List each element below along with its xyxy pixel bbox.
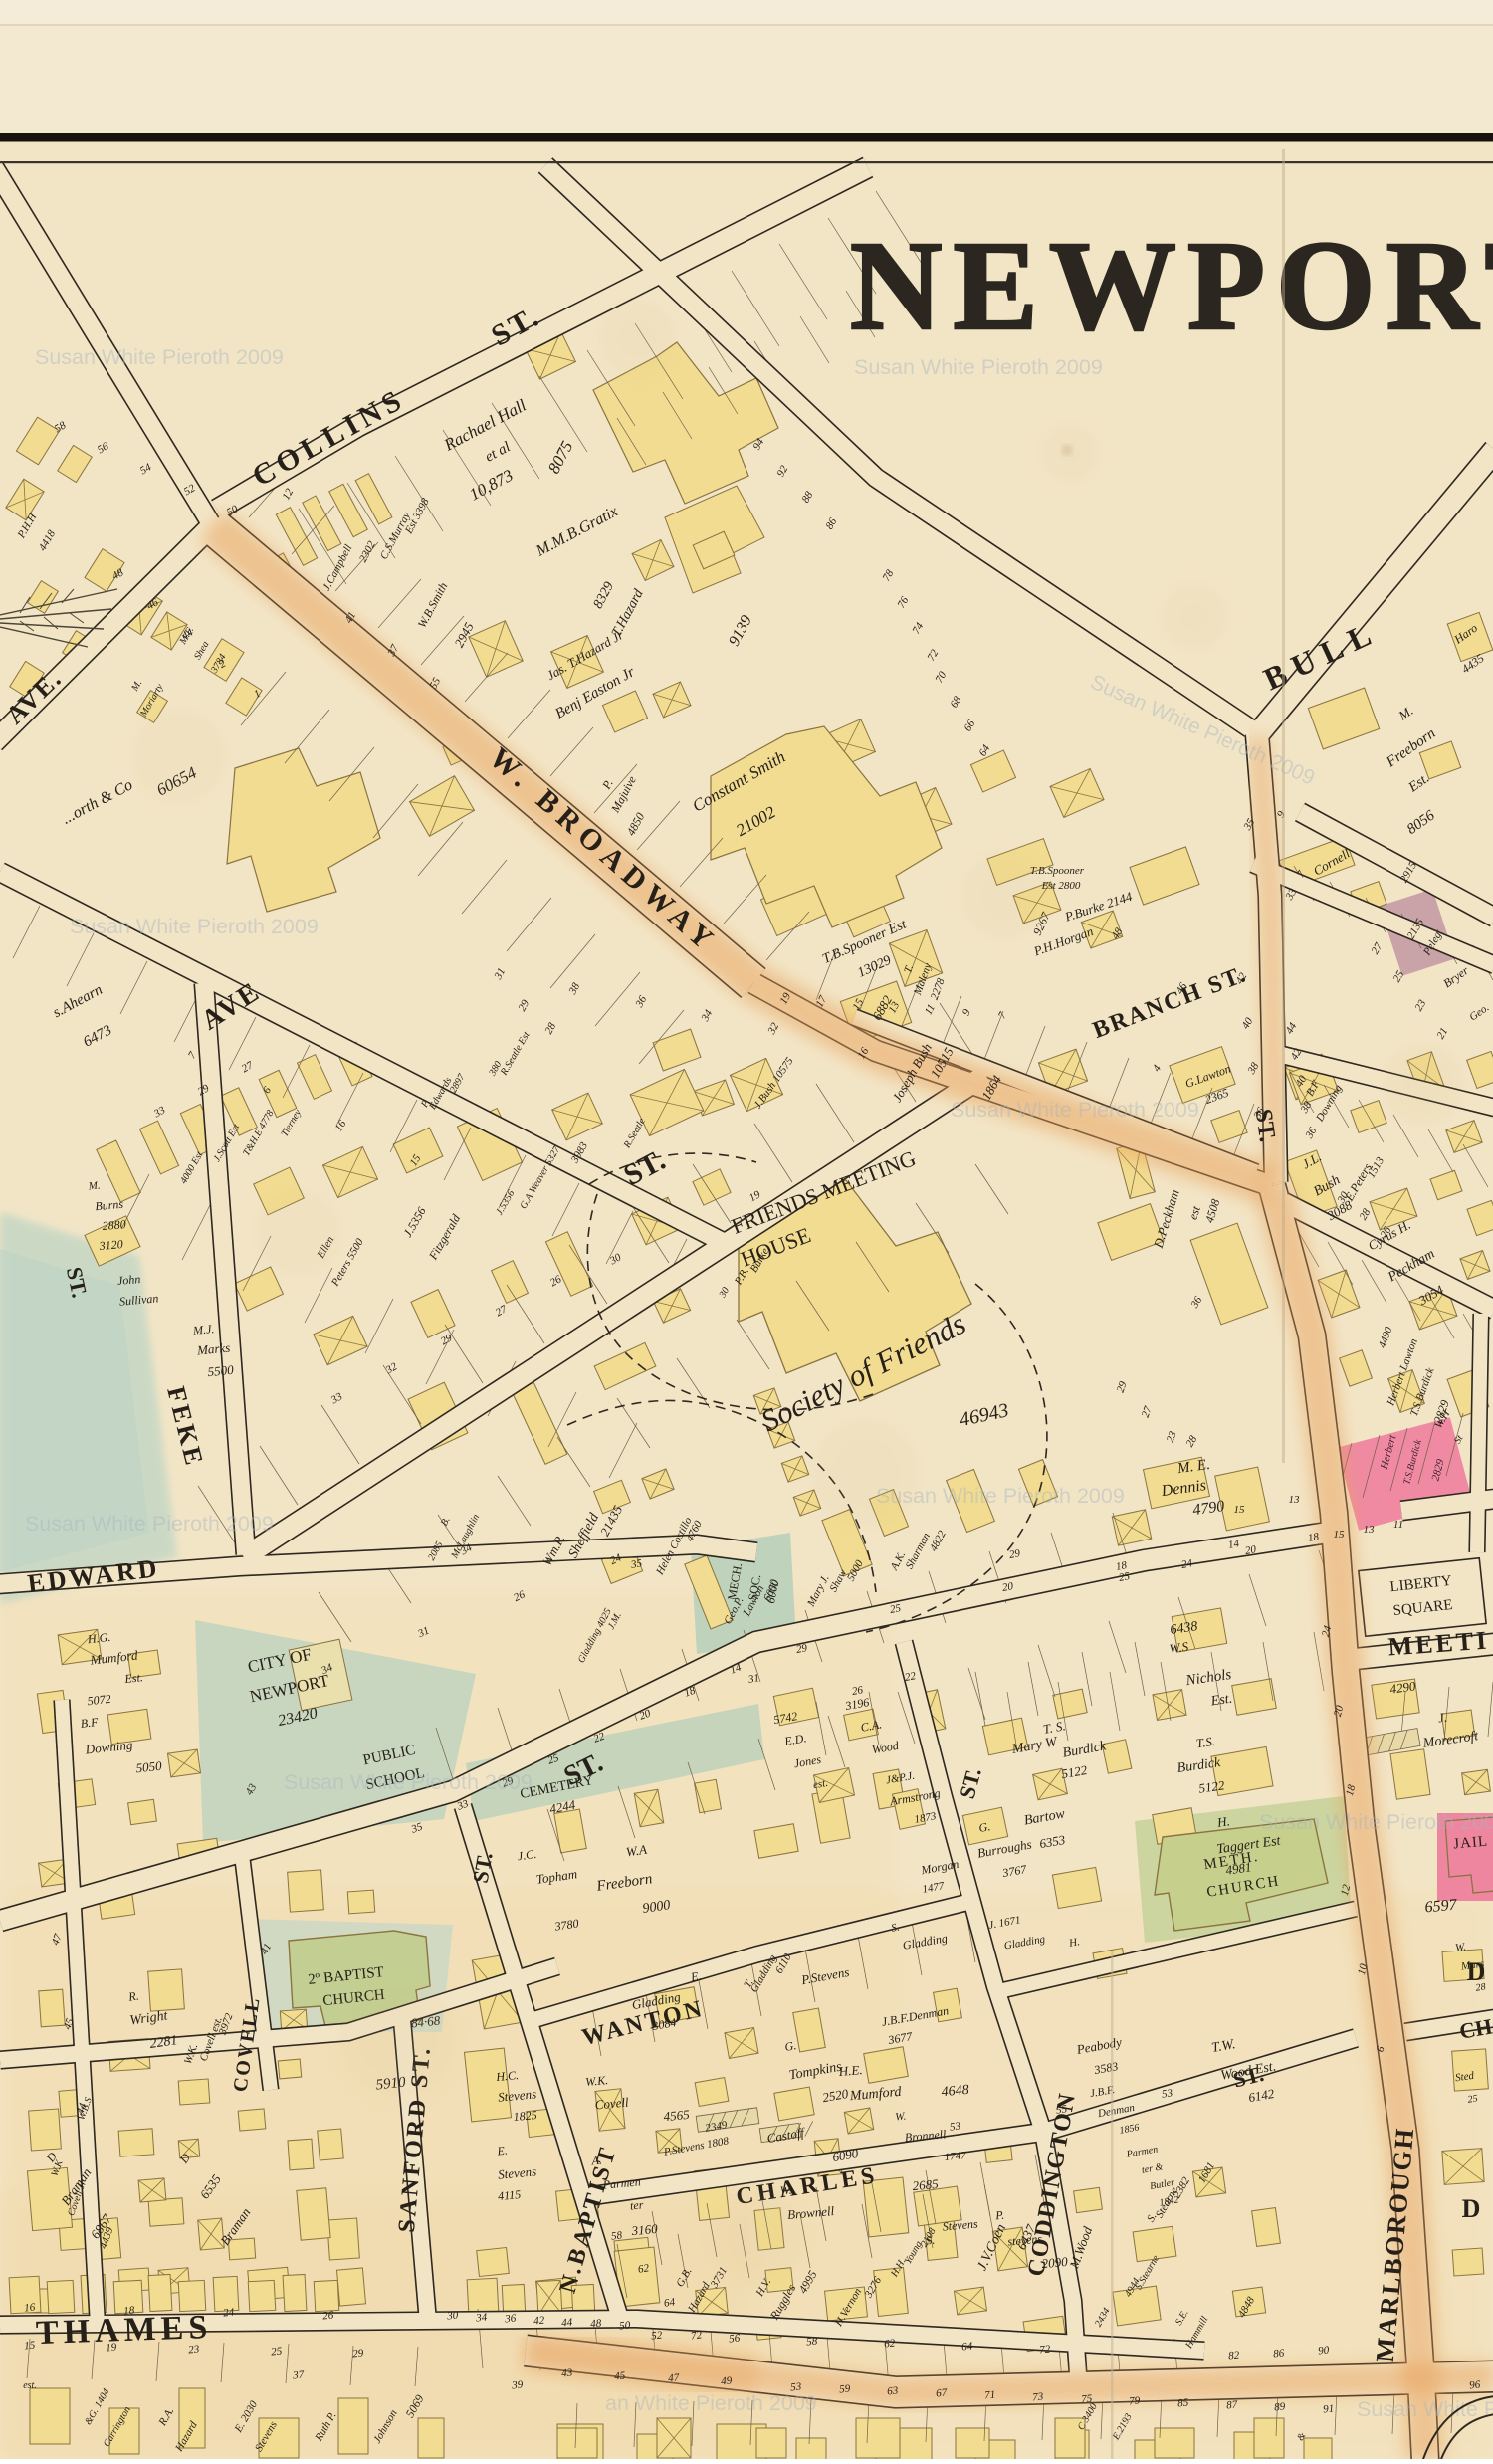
svg-text:H.G.: H.G. xyxy=(86,1630,111,1646)
svg-text:W.S: W.S xyxy=(1169,1639,1190,1657)
svg-text:91: 91 xyxy=(1323,2403,1335,2416)
svg-text:86: 86 xyxy=(1273,2348,1286,2361)
svg-text:5500: 5500 xyxy=(207,1362,235,1379)
svg-text:72: 72 xyxy=(1039,2344,1052,2357)
svg-text:26: 26 xyxy=(322,2310,335,2323)
svg-text:15: 15 xyxy=(1234,1504,1246,1516)
svg-text:18: 18 xyxy=(123,2305,136,2318)
svg-text:W.: W. xyxy=(1454,1941,1466,1953)
svg-text:75: 75 xyxy=(1081,2393,1094,2406)
svg-text:63: 63 xyxy=(887,2385,900,2398)
svg-text:15: 15 xyxy=(1334,1529,1346,1540)
svg-text:39: 39 xyxy=(511,2379,524,2392)
svg-text:4648: 4648 xyxy=(941,2083,969,2100)
svg-text:64: 64 xyxy=(961,2341,974,2354)
svg-text:25: 25 xyxy=(1467,2093,1478,2105)
svg-text:W.: W. xyxy=(779,2183,792,2198)
svg-text:E.: E. xyxy=(496,2144,509,2158)
svg-text:ST.: ST. xyxy=(468,1850,498,1885)
svg-text:15: 15 xyxy=(24,2340,37,2353)
svg-text:45: 45 xyxy=(614,2370,627,2383)
svg-text:23: 23 xyxy=(188,2344,201,2357)
svg-text:John: John xyxy=(116,1272,140,1288)
svg-text:W.K.: W.K. xyxy=(585,2073,609,2089)
svg-text:Susan White Pieroth 2009: Susan White Pieroth 2009 xyxy=(284,1770,533,1794)
svg-text:36: 36 xyxy=(504,2313,517,2326)
svg-text:16: 16 xyxy=(24,2302,37,2315)
svg-text:56: 56 xyxy=(729,2333,742,2346)
svg-text:47: 47 xyxy=(668,2372,681,2385)
svg-text:Marks: Marks xyxy=(195,1340,230,1358)
svg-text:58: 58 xyxy=(806,2336,819,2349)
svg-text:19: 19 xyxy=(106,2342,118,2355)
svg-text:1747: 1747 xyxy=(944,2150,966,2163)
svg-text:24: 24 xyxy=(223,2307,236,2320)
svg-text:62: 62 xyxy=(884,2338,897,2351)
svg-text:85: 85 xyxy=(1177,2397,1190,2410)
svg-text:13: 13 xyxy=(1289,1494,1301,1506)
svg-text:Susan White Pieroth 2009: Susan White Pieroth 2009 xyxy=(1259,1810,1493,1834)
svg-text:Susan White Pieroth 2009: Susan White Pieroth 2009 xyxy=(854,355,1103,379)
svg-text:G.: G. xyxy=(977,1819,991,1835)
svg-text:D: D xyxy=(1462,2194,1481,2223)
svg-text:T.S.: T.S. xyxy=(1195,1734,1216,1751)
svg-text:72: 72 xyxy=(690,2329,703,2342)
svg-text:Covell: Covell xyxy=(594,2095,629,2113)
svg-text:A.: A. xyxy=(590,2154,603,2168)
svg-text:30: 30 xyxy=(446,2310,459,2323)
svg-text:50: 50 xyxy=(619,2320,632,2333)
svg-text:Susan White Pieroth 2009: Susan White Pieroth 2009 xyxy=(951,1098,1199,1122)
svg-text:5072: 5072 xyxy=(87,1692,111,1708)
svg-text:R.: R. xyxy=(126,1988,139,2003)
svg-text:NEWPORT: NEWPORT xyxy=(850,215,1493,356)
svg-text:28: 28 xyxy=(1475,1981,1486,1993)
svg-text:79: 79 xyxy=(1129,2395,1142,2408)
svg-text:4565: 4565 xyxy=(663,2107,691,2124)
svg-text:53: 53 xyxy=(949,2120,961,2133)
svg-text:H.C.: H.C. xyxy=(495,2068,520,2084)
svg-text:29: 29 xyxy=(352,2348,365,2361)
svg-text:64: 64 xyxy=(663,2296,676,2309)
svg-text:Susan White Pieroth 2009: Susan White Pieroth 2009 xyxy=(35,345,284,369)
svg-text:59: 59 xyxy=(839,2383,852,2396)
svg-text:Est.: Est. xyxy=(1209,1692,1233,1710)
svg-text:JAIL: JAIL xyxy=(1453,1834,1489,1853)
svg-text:6597: 6597 xyxy=(1424,1897,1458,1917)
svg-text:96: 96 xyxy=(1469,2379,1482,2392)
svg-text:90: 90 xyxy=(1318,2345,1331,2358)
svg-text:est.: est. xyxy=(23,2380,37,2391)
svg-text:G.: G. xyxy=(783,2038,797,2054)
svg-text:58: 58 xyxy=(610,2229,623,2242)
svg-text:31: 31 xyxy=(746,1672,760,1686)
svg-text:Susan White Pieroth 2009: Susan White Pieroth 2009 xyxy=(25,1512,274,1536)
svg-text:49: 49 xyxy=(721,2375,734,2388)
svg-text:J.C.: J.C. xyxy=(517,1847,537,1864)
svg-text:W.A: W.A xyxy=(625,1842,648,1860)
svg-text:67: 67 xyxy=(936,2387,949,2400)
svg-text:H.: H. xyxy=(1067,1936,1081,1950)
svg-text:P.: P. xyxy=(994,2208,1005,2223)
svg-text:43: 43 xyxy=(561,2367,574,2380)
svg-text:est.: est. xyxy=(812,1777,829,1791)
svg-text:2685: 2685 xyxy=(912,2176,940,2193)
svg-text:55: 55 xyxy=(1055,2103,1068,2116)
svg-text:25: 25 xyxy=(271,2346,284,2359)
svg-text:an White Pieroth 2009: an White Pieroth 2009 xyxy=(605,2391,817,2415)
svg-text:44: 44 xyxy=(561,2317,574,2330)
svg-text:Est.: Est. xyxy=(123,1670,144,1686)
svg-text:82: 82 xyxy=(1228,2350,1241,2362)
svg-text:3120: 3120 xyxy=(98,1237,123,1253)
svg-text:E.: E. xyxy=(689,1968,703,1984)
svg-text:1825: 1825 xyxy=(513,2108,537,2124)
svg-text:87: 87 xyxy=(1226,2399,1239,2412)
svg-text:3160: 3160 xyxy=(630,2221,659,2238)
svg-text:M.: M. xyxy=(87,1180,101,1193)
svg-text:48: 48 xyxy=(590,2318,603,2331)
svg-text:M.J.: M.J. xyxy=(191,1322,214,1337)
svg-text:B.F: B.F xyxy=(80,1715,100,1731)
svg-text:73: 73 xyxy=(1032,2391,1045,2404)
svg-text:71: 71 xyxy=(984,2389,996,2402)
svg-text:34: 34 xyxy=(475,2312,488,2325)
svg-text:ter: ter xyxy=(629,2197,644,2212)
svg-text:Burns: Burns xyxy=(95,1197,124,1213)
svg-text:Susan White Pie: Susan White Pie xyxy=(1357,2397,1493,2421)
svg-text:13: 13 xyxy=(1364,1524,1376,1536)
svg-text:89: 89 xyxy=(1274,2401,1287,2414)
svg-text:H.: H. xyxy=(1215,1813,1231,1830)
svg-text:52: 52 xyxy=(651,2330,664,2343)
svg-text:W.: W. xyxy=(895,2111,907,2124)
svg-text:2090: 2090 xyxy=(1041,2254,1069,2271)
svg-text:62: 62 xyxy=(637,2262,650,2275)
svg-text:53: 53 xyxy=(1161,2087,1173,2100)
svg-text:Susan White Pieroth 2009: Susan White Pieroth 2009 xyxy=(70,915,319,938)
svg-text:5050: 5050 xyxy=(135,1758,163,1776)
svg-text:42: 42 xyxy=(533,2315,546,2328)
svg-text:37: 37 xyxy=(292,2369,305,2382)
svg-text:4115: 4115 xyxy=(498,2187,522,2203)
svg-text:2880: 2880 xyxy=(102,1217,126,1233)
svg-text:11: 11 xyxy=(1393,1519,1403,1531)
